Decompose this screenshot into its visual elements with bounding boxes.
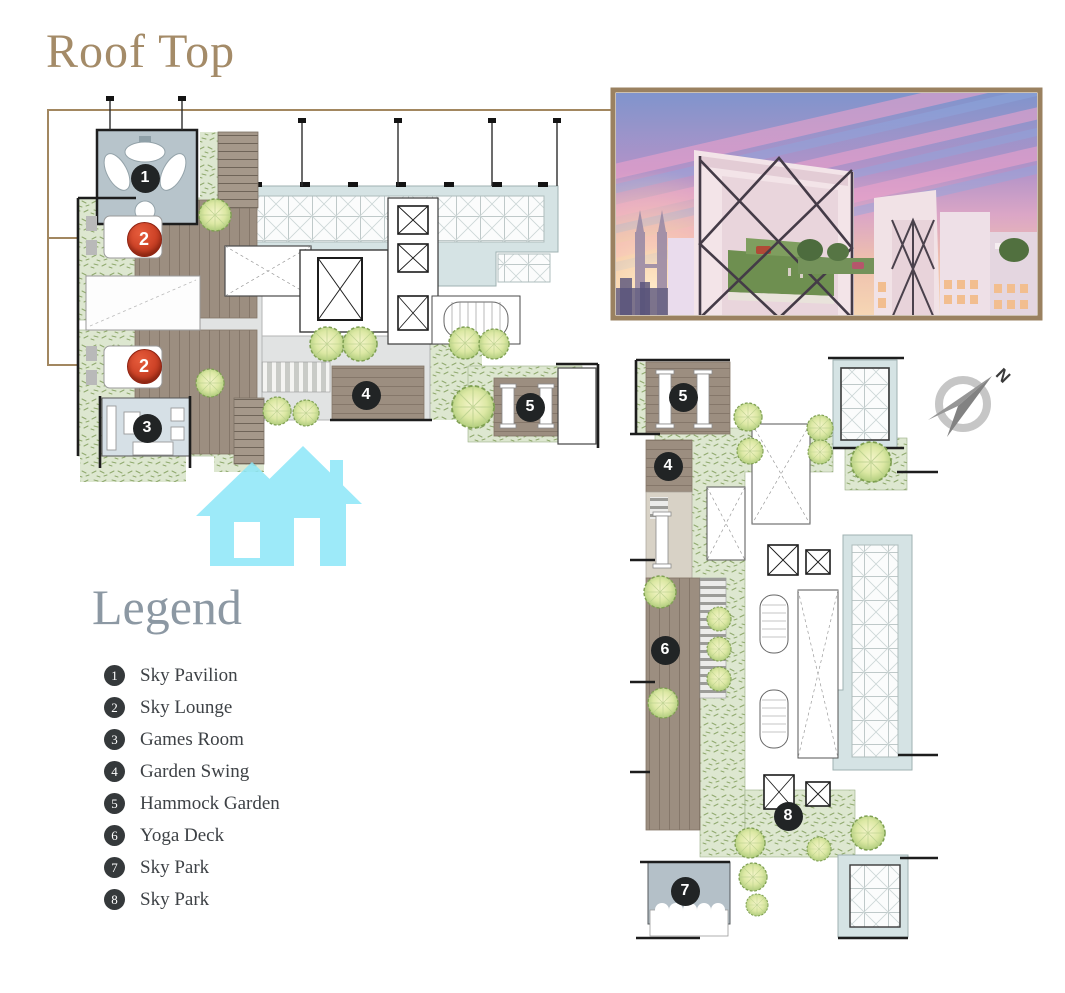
marker-yoga-deck: 6: [651, 636, 680, 665]
legend-item-sky-park: 8 Sky Park: [104, 889, 280, 910]
legend-label: Garden Swing: [140, 761, 249, 783]
compass-north-label: N: [992, 365, 1014, 387]
legend-item-sky-deck: 7 Sky Park: [104, 857, 280, 878]
legend-item-games-room: 3 Games Room: [104, 729, 280, 750]
marker-sky-lounge-upper: 2: [127, 222, 162, 257]
legend-label: Sky Lounge: [140, 697, 232, 719]
legend-label: Games Room: [140, 729, 244, 751]
legend-heading: Legend: [92, 578, 242, 636]
rooftop-brochure-page: Roof Top: [0, 0, 1065, 993]
legend-item-yoga-deck: 6 Yoga Deck: [104, 825, 280, 846]
legend-item-hammock-garden: 5 Hammock Garden: [104, 793, 280, 814]
marker-sky-deck: 7: [671, 877, 700, 906]
legend-badge: 7: [104, 857, 125, 878]
legend-label: Sky Park: [140, 857, 209, 879]
marker-sky-pavilion: 1: [131, 164, 160, 193]
legend-badge: 3: [104, 729, 125, 750]
legend-badge: 1: [104, 665, 125, 686]
marker-sky-park: 8: [774, 802, 803, 831]
legend-badge: 2: [104, 697, 125, 718]
legend-badge: 4: [104, 761, 125, 782]
marker-sky-lounge-lower: 2: [127, 349, 162, 384]
legend-label: Sky Park: [140, 889, 209, 911]
legend-item-garden-swing: 4 Garden Swing: [104, 761, 280, 782]
legend-items: 1 Sky Pavilion 2 Sky Lounge 3 Games Room…: [104, 665, 280, 921]
rooftop-photo: [532, 57, 1065, 410]
legend-label: Sky Pavilion: [140, 665, 238, 687]
marker-garden-swing-right: 4: [654, 452, 683, 481]
legend-badge: 5: [104, 793, 125, 814]
legend-label: Hammock Garden: [140, 793, 280, 815]
marker-garden-swing-left: 4: [352, 381, 381, 410]
compass-icon: N: [928, 365, 1014, 437]
legend-label: Yoga Deck: [140, 825, 224, 847]
marker-games-room: 3: [133, 414, 162, 443]
marker-hammock-garden-right: 5: [669, 383, 698, 412]
legend-badge: 6: [104, 825, 125, 846]
legend-badge: 8: [104, 889, 125, 910]
marker-hammock-garden-left: 5: [516, 393, 545, 422]
legend-item-sky-pavilion: 1 Sky Pavilion: [104, 665, 280, 686]
legend-item-sky-lounge: 2 Sky Lounge: [104, 697, 280, 718]
